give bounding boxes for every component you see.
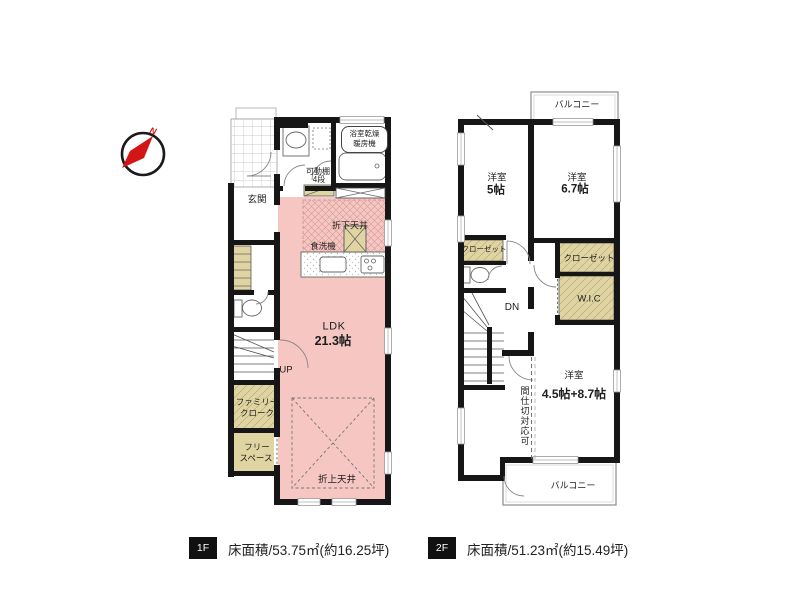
label-room67: 洋室 xyxy=(567,173,586,183)
kitchen-stove xyxy=(361,256,384,273)
kitchen-counter xyxy=(301,252,388,277)
label-closet-left: クローゼット xyxy=(462,245,507,253)
floor1-badge: 1F xyxy=(189,537,217,559)
shoe-storage xyxy=(232,246,251,290)
label-balcony-bottom: バルコニー xyxy=(551,482,596,491)
entrance-step xyxy=(236,108,276,119)
washbasin xyxy=(283,126,309,156)
floor2-badge: 2F xyxy=(428,537,456,559)
label-entrance: 玄関 xyxy=(247,195,266,205)
label-stairs-down: DN xyxy=(505,303,519,313)
label-room67-area: 6.7帖 xyxy=(561,184,589,196)
floorplan-page: N 玄関 浴室乾燥 暖房機 可動棚 4段 折下天井 食洗機 LDK 21.3帖 … xyxy=(0,0,800,600)
label-dishwasher: 食洗機 xyxy=(310,242,336,251)
label-room5: 洋室 xyxy=(487,173,506,183)
label-free-space-1: フリー xyxy=(244,443,270,452)
label-stairs-up: UP xyxy=(279,365,292,375)
washer-space xyxy=(313,128,330,149)
floor1-area-text: 床面積/53.75㎡(約16.25坪) xyxy=(228,539,389,559)
label-ldk-area: 21.3帖 xyxy=(315,335,352,348)
toilet-1f xyxy=(234,300,262,317)
label-balcony-top: バルコニー xyxy=(555,101,600,110)
bathtub xyxy=(339,153,386,180)
porch-tiles xyxy=(231,119,277,187)
label-room5-area: 5帖 xyxy=(487,185,505,197)
label-raised-ceiling: 折上天井 xyxy=(318,475,356,485)
floorplan-drawing xyxy=(0,0,800,600)
label-movable-shelf-2: 4段 xyxy=(313,176,325,184)
stairs-1f xyxy=(232,334,274,372)
label-closet-right: クローゼット xyxy=(563,254,614,263)
kitchen-sink xyxy=(320,257,346,272)
label-free-space-2: スペース xyxy=(240,454,273,463)
compass xyxy=(122,133,164,175)
bath-dryer-line2: 暖房機 xyxy=(353,140,376,149)
label-room-main: 洋室 xyxy=(564,371,583,381)
bath-dryer-line1: 浴室乾燥 xyxy=(350,130,380,139)
laundry-pan xyxy=(336,188,385,198)
floor2-area-text: 床面積/51.23㎡(約15.49坪) xyxy=(467,539,628,559)
label-family-closet-2: クローク xyxy=(240,409,274,418)
label-family-closet-1: ファミリー xyxy=(236,398,279,407)
stairs-2f xyxy=(462,293,504,381)
bath-dryer-box: 浴室乾燥 暖房機 xyxy=(341,126,388,153)
label-lowered-ceiling: 折下天井 xyxy=(332,222,368,231)
label-ldk: LDK xyxy=(323,322,346,333)
toilet-2f xyxy=(463,267,489,283)
label-room-main-area: 4.5帖+8.7帖 xyxy=(542,388,606,400)
label-wic: W.I.C xyxy=(577,294,600,304)
label-partition-note: 間仕切対応可 xyxy=(519,386,532,446)
